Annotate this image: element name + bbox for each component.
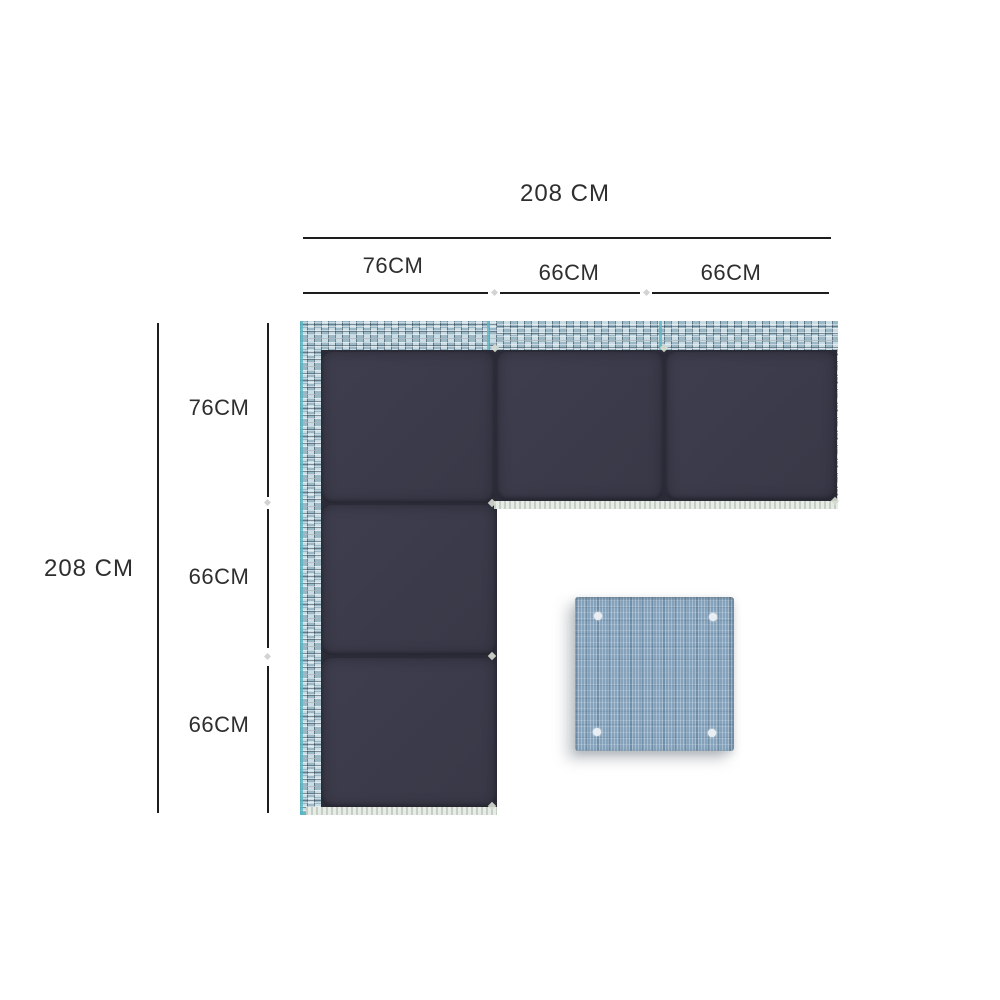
top-segment-line-2 xyxy=(500,292,640,294)
table-corner-button xyxy=(594,612,602,620)
sofa-front-edge-strip-left-arm xyxy=(306,807,497,815)
dimension-diagram: 208 CM 76CM 66CM 66CM 208 CM 76CM 66CM 6… xyxy=(0,0,1000,1000)
top-segment-line-1 xyxy=(303,292,488,294)
top-total-dimension-line xyxy=(303,237,831,239)
left-segment-label-1: 76CM xyxy=(164,395,274,421)
top-segment-tick-1 xyxy=(491,289,498,296)
table-corner-button xyxy=(593,728,601,736)
table-corner-button xyxy=(709,613,717,621)
seat-cushion-top-3 xyxy=(666,352,836,500)
left-segment-line-2 xyxy=(267,509,269,648)
left-segment-label-2: 66CM xyxy=(164,564,274,590)
top-segment-line-3 xyxy=(652,292,829,294)
left-segment-tick-1 xyxy=(264,499,271,506)
seat-cushion-left-3 xyxy=(322,658,496,807)
top-segment-label-1: 76CM xyxy=(338,253,448,279)
top-segment-label-3: 66CM xyxy=(676,260,786,286)
left-total-dimension-line xyxy=(157,323,159,813)
left-segment-line-1 xyxy=(267,323,269,497)
seat-cushion-left-2 xyxy=(322,505,496,655)
left-segment-line-3 xyxy=(267,666,269,813)
table-corner-button xyxy=(708,729,716,737)
side-table xyxy=(575,597,734,751)
top-total-dimension-label: 208 CM xyxy=(465,180,665,208)
left-segment-tick-2 xyxy=(264,653,271,660)
frame-teal-edge-left xyxy=(300,321,303,815)
seat-cushion-top-2 xyxy=(497,352,663,500)
left-segment-label-3: 66CM xyxy=(164,712,274,738)
left-total-dimension-label: 208 CM xyxy=(19,555,159,583)
corner-cushion xyxy=(322,352,494,503)
frame-teal-module-line-1 xyxy=(487,321,490,351)
top-segment-tick-2 xyxy=(643,289,650,296)
sofa-front-edge-strip-top-arm xyxy=(494,501,838,509)
top-segment-label-2: 66CM xyxy=(514,260,624,286)
